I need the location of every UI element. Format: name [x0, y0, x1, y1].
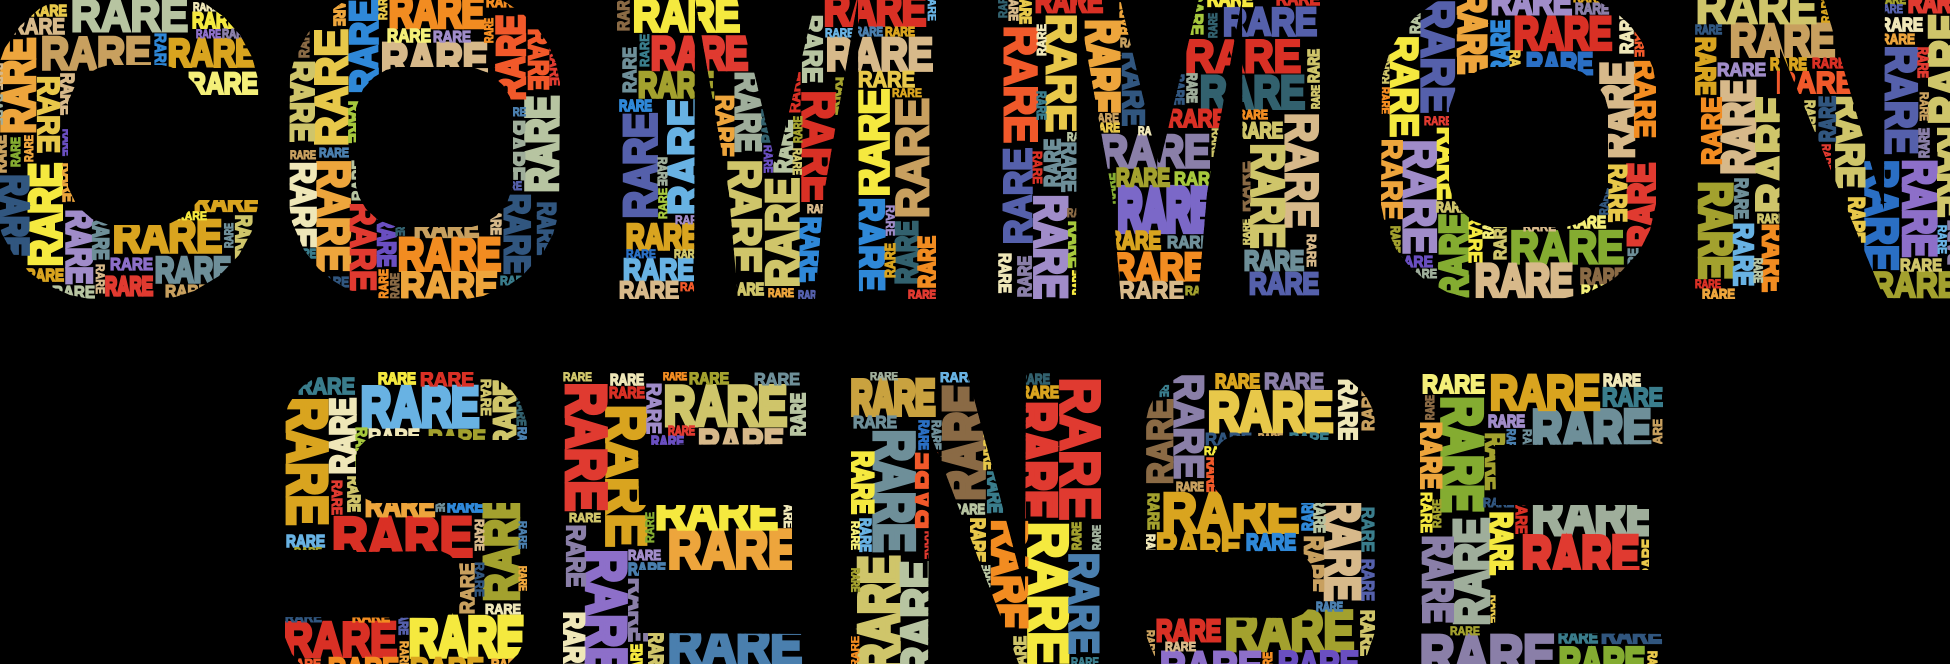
svg-text:RARE: RARE	[1491, 0, 1572, 22]
svg-text:RARE: RARE	[569, 510, 601, 525]
svg-text:RARE: RARE	[883, 205, 896, 236]
svg-text:RARE: RARE	[644, 632, 666, 664]
svg-text:RARE: RARE	[657, 188, 670, 219]
svg-text:RARE: RARE	[1015, 256, 1036, 297]
svg-text:RARE: RARE	[649, 0, 674, 1]
svg-text:RARE: RARE	[410, 652, 484, 664]
svg-text:RARE: RARE	[1358, 559, 1378, 601]
svg-text:RARE: RARE	[290, 149, 316, 162]
svg-text:RARE: RARE	[1415, 536, 1461, 623]
svg-text:RARE: RARE	[105, 271, 153, 301]
svg-text:RARE: RARE	[885, 24, 915, 39]
svg-text:RARE: RARE	[196, 28, 221, 41]
svg-text:RARE: RARE	[709, 0, 738, 1]
svg-text:RARE: RARE	[1930, 127, 1950, 217]
svg-text:RARE: RARE	[0, 94, 4, 125]
svg-text:RARE: RARE	[1450, 0, 1493, 74]
svg-text:RARE: RARE	[792, 116, 805, 143]
svg-text:RARE: RARE	[1730, 178, 1751, 219]
svg-text:RARE: RARE	[483, 18, 496, 43]
svg-text:RARE: RARE	[1358, 507, 1378, 552]
svg-text:RARE: RARE	[1900, 255, 1942, 275]
svg-text:RARE: RARE	[1061, 553, 1107, 654]
svg-text:RARE: RARE	[1316, 599, 1343, 614]
svg-text:RARE: RARE	[1488, 411, 1525, 431]
svg-text:RARE: RARE	[472, 519, 487, 551]
svg-text:RARE: RARE	[628, 548, 661, 564]
svg-text:RARE: RARE	[637, 34, 652, 67]
svg-text:RARE: RARE	[1069, 522, 1084, 550]
svg-text:RARE: RARE	[477, 379, 493, 416]
svg-text:RARE: RARE	[0, 63, 4, 90]
svg-text:RARE: RARE	[610, 372, 644, 389]
svg-text:RARE: RARE	[853, 412, 897, 432]
svg-text:RARE: RARE	[1717, 60, 1766, 81]
svg-text:RARE: RARE	[485, 602, 521, 618]
svg-text:RARE: RARE	[1165, 639, 1196, 654]
svg-text:RARE: RARE	[1035, 0, 1103, 19]
svg-text:RARE: RARE	[892, 87, 922, 100]
svg-text:RARE: RARE	[1695, 278, 1721, 291]
svg-text:RARE: RARE	[1071, 656, 1099, 664]
svg-text:RARE: RARE	[1304, 234, 1319, 267]
svg-text:RARE: RARE	[1276, 0, 1320, 10]
svg-text:RARE: RARE	[387, 26, 431, 47]
svg-text:RARE: RARE	[328, 652, 399, 664]
svg-text:RARE: RARE	[754, 369, 800, 389]
svg-text:RARE: RARE	[1815, 96, 1840, 142]
svg-text:RARE: RARE	[1696, 97, 1727, 165]
svg-text:RARE: RARE	[1914, 47, 1930, 78]
svg-text:RARE: RARE	[1144, 493, 1161, 530]
svg-text:RARE: RARE	[1917, 92, 1930, 121]
svg-text:RARE: RARE	[915, 420, 931, 450]
svg-text:RARE: RARE	[619, 98, 652, 115]
svg-text:RARE: RARE	[23, 135, 36, 162]
svg-text:RARE: RARE	[397, 641, 410, 664]
svg-text:RARE: RARE	[1431, 499, 1444, 528]
svg-text:RARE: RARE	[997, 0, 1010, 18]
svg-text:RARE: RARE	[319, 145, 349, 160]
svg-text:RARE: RARE	[655, 157, 670, 186]
svg-text:RARE: RARE	[563, 371, 592, 384]
svg-text:RARE: RARE	[142, 0, 169, 1]
svg-text:RARE: RARE	[1645, 651, 1660, 664]
svg-text:RARE: RARE	[377, 0, 390, 20]
svg-text:RARE: RARE	[1935, 225, 1948, 254]
svg-text:RARE: RARE	[668, 423, 695, 438]
svg-text:RARE: RARE	[110, 254, 153, 274]
svg-text:RARE: RARE	[855, 24, 883, 39]
svg-text:RARE: RARE	[642, 383, 664, 434]
svg-text:RARE: RARE	[626, 248, 656, 261]
svg-text:RARE: RARE	[328, 480, 344, 515]
svg-text:RARE: RARE	[93, 264, 106, 294]
svg-text:RARE: RARE	[1207, 0, 1253, 11]
svg-text:RARE: RARE	[883, 243, 899, 278]
svg-text:RARE: RARE	[79, 0, 110, 2]
svg-text:RARE: RARE	[1244, 245, 1304, 276]
svg-text:RARE: RARE	[1183, 73, 1199, 103]
svg-text:RARE: RARE	[1751, 258, 1764, 283]
svg-text:RARE: RARE	[8, 137, 23, 167]
svg-text:RARE: RARE	[1278, 645, 1359, 664]
svg-text:RARE: RARE	[1603, 370, 1641, 390]
svg-text:RARE: RARE	[1881, 32, 1915, 48]
svg-text:RARE: RARE	[995, 253, 1015, 293]
svg-text:RARE: RARE	[1260, 652, 1275, 664]
svg-text:RARE: RARE	[433, 29, 471, 46]
svg-text:RARE: RARE	[1034, 91, 1049, 120]
svg-text:RARE: RARE	[389, 273, 402, 299]
svg-text:RARE: RARE	[472, 562, 487, 597]
svg-text:RARE: RARE	[555, 383, 617, 511]
svg-text:RARE: RARE	[1034, 24, 1049, 56]
svg-text:RARE: RARE	[561, 525, 591, 587]
svg-text:RARE: RARE	[1695, 22, 1722, 37]
svg-text:RARE: RARE	[1424, 395, 1437, 420]
svg-text:RARE: RARE	[768, 287, 794, 300]
svg-text:RARE: RARE	[1207, 13, 1220, 38]
svg-text:RARE: RARE	[790, 148, 803, 175]
svg-text:RARE: RARE	[1176, 479, 1204, 494]
svg-text:RARE: RARE	[1238, 107, 1268, 122]
svg-text:RARE: RARE	[1116, 165, 1170, 192]
svg-text:RARE: RARE	[1917, 128, 1933, 158]
svg-text:RARE: RARE	[1310, 498, 1327, 533]
svg-text:RARE: RARE	[1215, 371, 1260, 393]
svg-text:RARE: RARE	[629, 644, 646, 664]
svg-text:RARE: RARE	[1424, 115, 1452, 128]
svg-text:RARE: RARE	[420, 369, 474, 391]
svg-text:RARE: RARE	[1450, 625, 1480, 638]
svg-text:RARE: RARE	[1422, 369, 1485, 399]
svg-text:RARE: RARE	[825, 27, 854, 40]
svg-text:RARE: RARE	[112, 0, 138, 1]
svg-text:RARE: RARE	[1030, 151, 1045, 184]
svg-text:RARE: RARE	[644, 512, 657, 543]
svg-text:RARE: RARE	[223, 223, 236, 248]
